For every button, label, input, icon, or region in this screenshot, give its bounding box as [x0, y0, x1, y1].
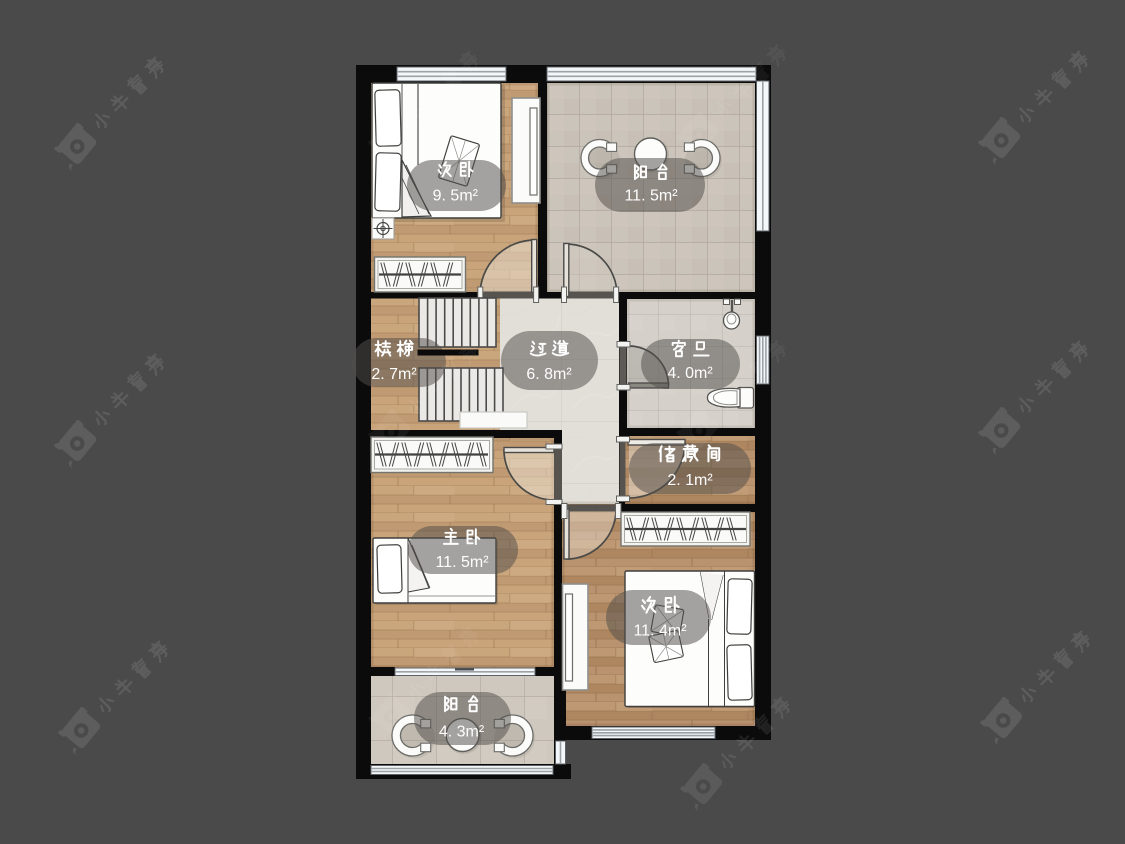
svg-text:9. 5m²: 9. 5m² — [433, 187, 479, 204]
svg-text:2. 1m²: 2. 1m² — [667, 472, 713, 489]
svg-text:11. 5m²: 11. 5m² — [435, 554, 489, 571]
svg-text:2. 7m²: 2. 7m² — [371, 366, 417, 383]
svg-text:4. 3m²: 4. 3m² — [439, 723, 485, 740]
svg-text:6. 8m²: 6. 8m² — [526, 366, 572, 383]
svg-text:11. 4m²: 11. 4m² — [633, 622, 687, 639]
svg-text:4. 0m²: 4. 0m² — [667, 365, 713, 382]
svg-text:11. 5m²: 11. 5m² — [624, 187, 678, 204]
